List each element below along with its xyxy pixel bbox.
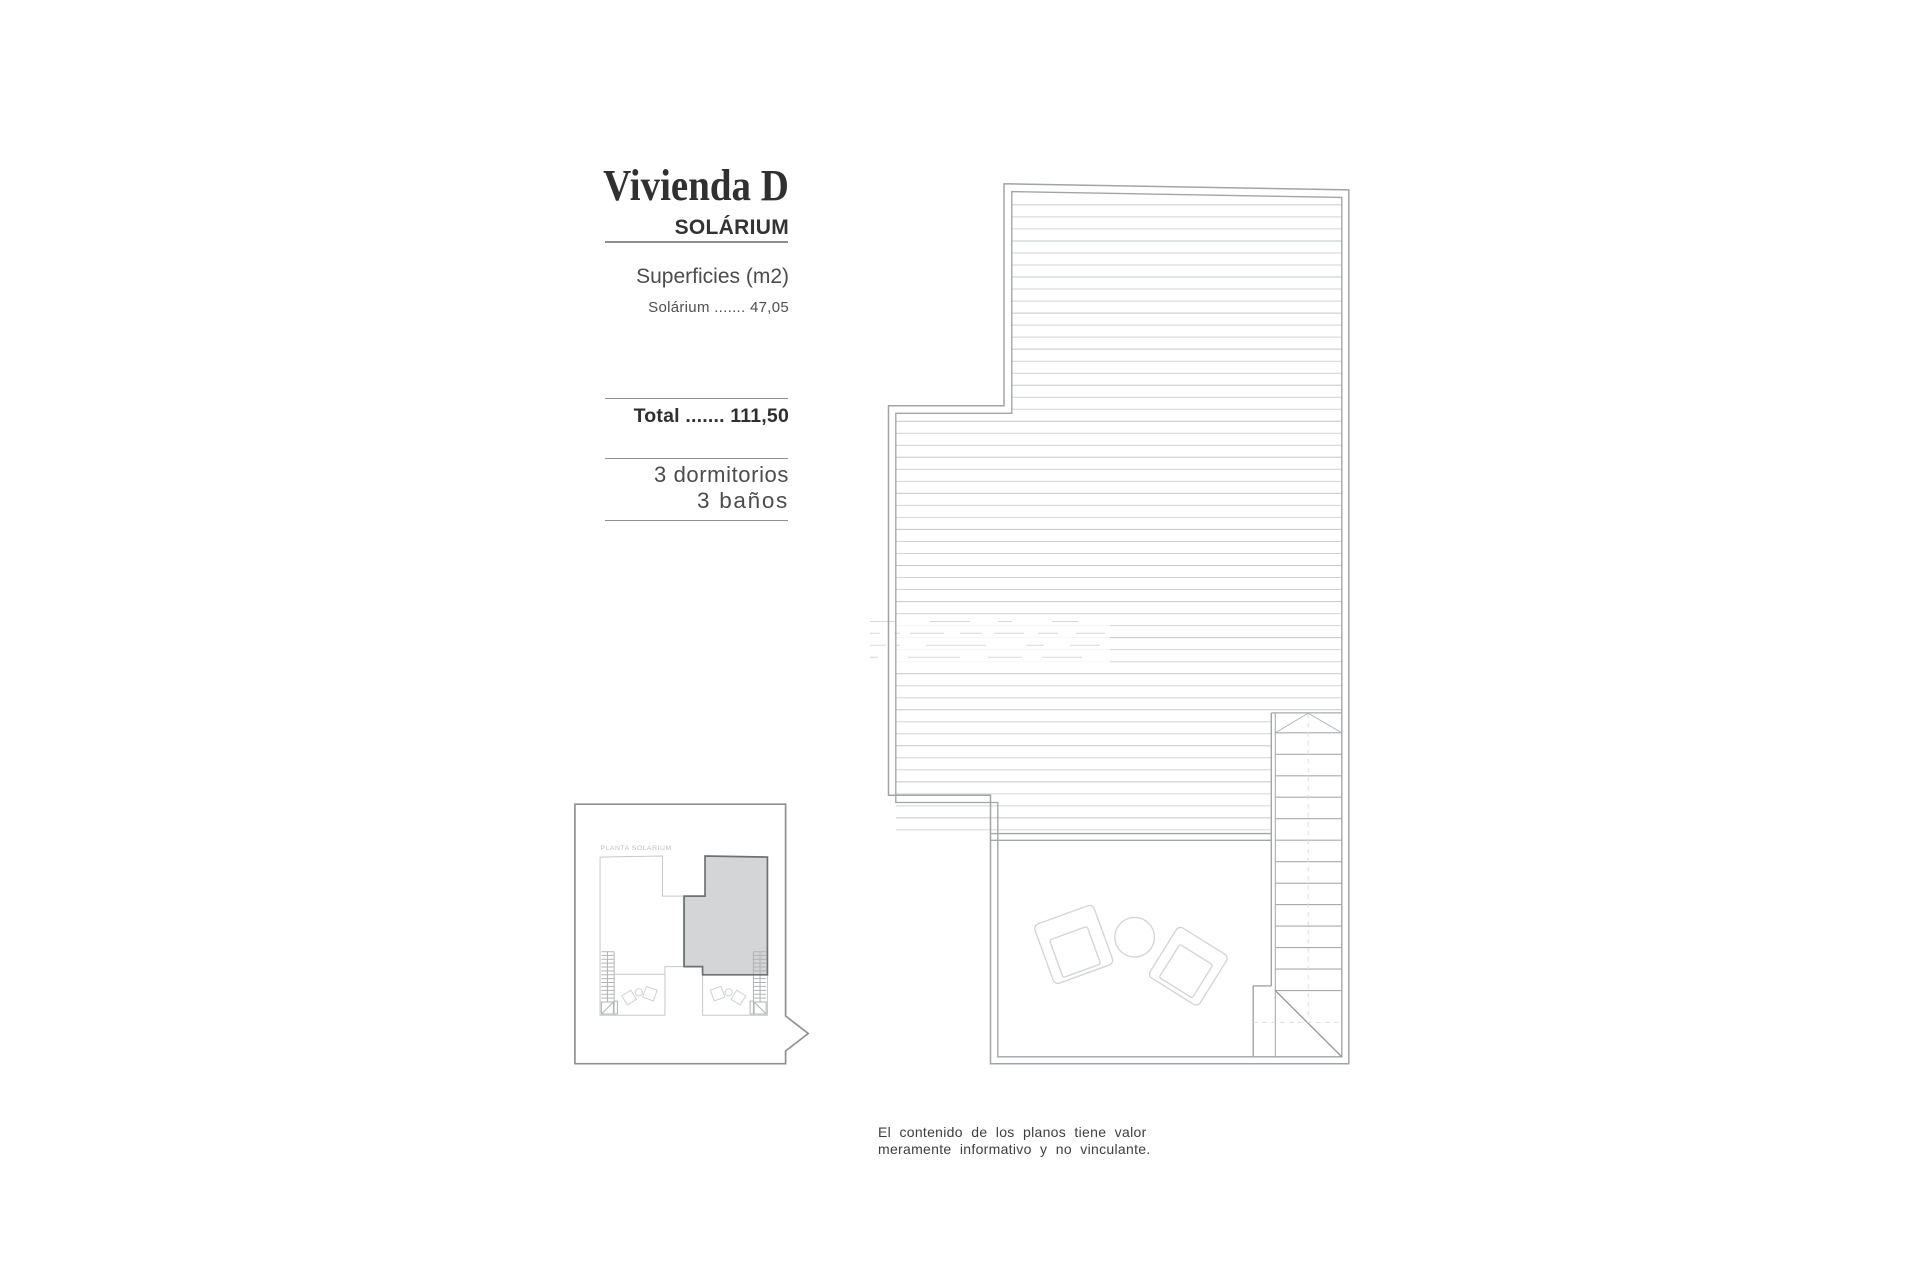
svg-text:PLANTA SOLARIUM: PLANTA SOLARIUM <box>601 845 672 852</box>
